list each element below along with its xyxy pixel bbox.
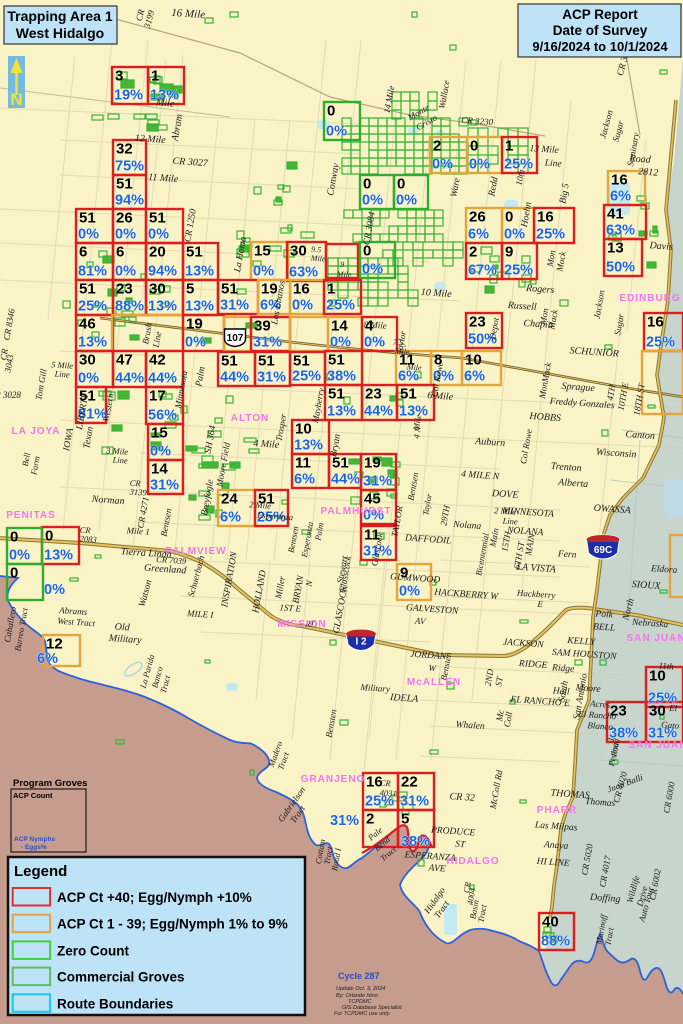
svg-text:Blanco: Blanco <box>587 720 614 732</box>
svg-text:0: 0 <box>10 529 18 546</box>
svg-text:HIDALGO: HIDALGO <box>446 856 499 867</box>
svg-text:Anaya: Anaya <box>543 840 569 852</box>
svg-text:31%: 31% <box>150 478 179 494</box>
svg-text:El: El <box>668 703 678 714</box>
svg-text:10: 10 <box>295 421 312 438</box>
svg-text:0%: 0% <box>326 124 347 140</box>
svg-text:5: 5 <box>186 281 194 298</box>
svg-text:5: 5 <box>401 811 409 828</box>
svg-text:51: 51 <box>116 176 133 193</box>
svg-text:6%: 6% <box>610 189 631 205</box>
svg-text:46: 46 <box>79 316 96 333</box>
svg-text:Doffing: Doffing <box>589 892 621 905</box>
svg-text:2: 2 <box>469 244 477 261</box>
svg-text:0: 0 <box>363 176 371 193</box>
svg-text:12: 12 <box>46 636 63 653</box>
svg-text:19: 19 <box>186 316 203 333</box>
svg-text:25%: 25% <box>326 298 355 314</box>
svg-text:0%: 0% <box>150 444 171 460</box>
svg-text:I 2: I 2 <box>355 637 367 648</box>
svg-text:Whalen: Whalen <box>455 720 485 732</box>
svg-text:Ridge: Ridge <box>551 663 575 675</box>
svg-text:Nolana: Nolana <box>452 520 482 532</box>
svg-text:22: 22 <box>401 774 418 791</box>
svg-text:63%: 63% <box>606 223 635 239</box>
svg-text:6%: 6% <box>464 369 485 385</box>
svg-text:45: 45 <box>364 491 381 508</box>
svg-text:0: 0 <box>327 103 335 120</box>
svg-text:0%: 0% <box>399 584 420 600</box>
svg-text:ACP Nymphs: ACP Nymphs <box>14 836 55 843</box>
svg-text:6%: 6% <box>468 227 489 243</box>
svg-text:16: 16 <box>537 209 554 226</box>
svg-text:88%: 88% <box>541 934 570 950</box>
svg-text:Mile: Mile <box>406 362 423 372</box>
svg-text:30: 30 <box>649 703 666 720</box>
svg-text:0%: 0% <box>148 227 169 243</box>
svg-text:EDINBURG: EDINBURG <box>619 293 680 304</box>
svg-text:Line: Line <box>543 158 562 169</box>
svg-text:38%: 38% <box>327 369 356 385</box>
svg-text:BELL: BELL <box>593 622 616 634</box>
svg-text:16 Mile: 16 Mile <box>171 7 206 21</box>
svg-text:0: 0 <box>45 528 53 545</box>
svg-text:11th: 11th <box>658 660 674 671</box>
svg-text:GRANJENO: GRANJENO <box>301 774 366 785</box>
svg-text:3139: 3139 <box>128 486 147 497</box>
svg-text:42: 42 <box>149 352 166 369</box>
svg-text:DOVE: DOVE <box>490 488 518 501</box>
svg-text:9: 9 <box>505 244 513 261</box>
svg-text:31%: 31% <box>363 474 392 490</box>
svg-text:10: 10 <box>465 352 482 369</box>
svg-text:75%: 75% <box>115 159 144 175</box>
svg-text:Acres: Acres <box>589 698 611 709</box>
svg-text:1: 1 <box>327 281 335 298</box>
svg-text:11 Mile: 11 Mile <box>148 172 179 185</box>
svg-text:17: 17 <box>149 388 166 405</box>
svg-text:51: 51 <box>149 210 166 227</box>
svg-text:For TCPDMC use only.: For TCPDMC use only. <box>334 1011 391 1017</box>
svg-text:SIOUX: SIOUX <box>631 579 661 592</box>
svg-text:44%: 44% <box>364 404 393 420</box>
svg-text:39: 39 <box>254 318 271 335</box>
svg-text:Old: Old <box>114 621 131 633</box>
svg-text:West Hidalgo: West Hidalgo <box>16 25 104 41</box>
svg-text:19: 19 <box>364 455 381 472</box>
svg-text:51: 51 <box>258 353 275 370</box>
svg-text:Zero Count: Zero Count <box>57 943 129 958</box>
svg-text:13%: 13% <box>185 299 214 315</box>
svg-text:11: 11 <box>295 455 311 472</box>
svg-text:0: 0 <box>470 138 478 155</box>
svg-text:PALMHURST: PALMHURST <box>320 506 391 517</box>
svg-text:ST: ST <box>455 840 466 851</box>
svg-text:0%: 0% <box>362 262 383 278</box>
svg-text:19%: 19% <box>114 88 143 104</box>
svg-text:13%: 13% <box>148 299 177 315</box>
svg-text:94%: 94% <box>148 264 177 280</box>
svg-text:Davis: Davis <box>648 240 673 253</box>
svg-text:15: 15 <box>254 243 271 260</box>
svg-text:PALMVIEW: PALMVIEW <box>165 546 226 557</box>
svg-text:20: 20 <box>149 244 166 261</box>
svg-text:Norman: Norman <box>90 494 124 507</box>
svg-text:51: 51 <box>328 352 345 369</box>
svg-text:51: 51 <box>79 281 96 298</box>
svg-text:12 Mile: 12 Mile <box>134 133 166 146</box>
svg-text:94%: 94% <box>115 193 144 209</box>
svg-text:Mile: Mile <box>155 97 176 109</box>
svg-text:6%: 6% <box>37 651 58 667</box>
svg-text:0%: 0% <box>504 227 525 243</box>
svg-text:MISSION: MISSION <box>277 619 326 630</box>
svg-text:LA JOYA: LA JOYA <box>11 426 60 437</box>
svg-text:Military: Military <box>359 682 390 694</box>
svg-text:67%: 67% <box>468 263 497 279</box>
svg-text:81%: 81% <box>78 264 107 280</box>
svg-text:8 Mile: 8 Mile <box>363 319 387 331</box>
svg-text:Program Groves: Program Groves <box>13 778 87 789</box>
svg-text:44%: 44% <box>220 370 249 386</box>
svg-text:0%: 0% <box>432 157 453 173</box>
svg-text:CR 3028: CR 3028 <box>0 390 21 400</box>
svg-text:13%: 13% <box>294 438 323 454</box>
svg-text:13: 13 <box>607 240 624 257</box>
svg-text:Route Boundaries: Route Boundaries <box>57 996 173 1011</box>
svg-text:31%: 31% <box>220 298 249 314</box>
svg-text:Polk: Polk <box>594 609 614 620</box>
svg-text:51: 51 <box>186 244 203 261</box>
svg-text:E: E <box>536 599 544 609</box>
svg-text:CR 32: CR 32 <box>449 791 475 804</box>
svg-text:31%: 31% <box>257 370 286 386</box>
svg-text:Legend: Legend <box>14 863 67 880</box>
svg-text:2: 2 <box>366 811 374 828</box>
svg-text:0%: 0% <box>44 582 65 598</box>
svg-text:44%: 44% <box>115 371 144 387</box>
svg-text:6: 6 <box>116 244 124 261</box>
svg-text:25%: 25% <box>504 263 533 279</box>
svg-text:6%: 6% <box>294 472 315 488</box>
svg-text:Cycle 287: Cycle 287 <box>338 971 380 981</box>
svg-text:25%: 25% <box>292 369 321 385</box>
svg-text:10 Mile: 10 Mile <box>420 287 452 300</box>
svg-text:25%: 25% <box>78 299 107 315</box>
svg-text:6%: 6% <box>220 510 241 526</box>
svg-text:RIDGE: RIDGE <box>518 659 548 671</box>
svg-text:- Eggs%: - Eggs% <box>21 844 47 851</box>
svg-text:41: 41 <box>607 206 624 223</box>
svg-text:26: 26 <box>469 209 486 226</box>
svg-text:14: 14 <box>331 318 348 335</box>
svg-text:0: 0 <box>505 209 513 226</box>
svg-text:51: 51 <box>79 210 96 227</box>
svg-text:Date of Survey: Date of Survey <box>553 23 648 38</box>
svg-text:Trapping Area 1: Trapping Area 1 <box>7 8 113 24</box>
svg-text:23: 23 <box>116 281 133 298</box>
svg-text:Eldora: Eldora <box>650 564 678 576</box>
svg-text:32: 32 <box>116 141 133 158</box>
svg-text:Trenton: Trenton <box>550 461 581 474</box>
svg-text:0%: 0% <box>78 227 99 243</box>
svg-text:ACP Ct 1 - 39; Egg/Nymph 1% to: ACP Ct 1 - 39; Egg/Nymph 1% to 9% <box>57 917 288 932</box>
svg-text:0%: 0% <box>362 193 383 209</box>
svg-text:24: 24 <box>221 491 238 508</box>
svg-text:2: 2 <box>433 138 441 155</box>
svg-text:107: 107 <box>227 333 244 344</box>
svg-text:AVE: AVE <box>427 863 446 874</box>
svg-text:44%: 44% <box>148 371 177 387</box>
svg-text:3: 3 <box>115 68 123 85</box>
svg-text:13%: 13% <box>44 548 73 564</box>
svg-text:56%: 56% <box>148 408 177 424</box>
svg-text:0: 0 <box>397 176 405 193</box>
svg-text:PHARR: PHARR <box>537 805 578 816</box>
svg-text:1: 1 <box>151 68 159 85</box>
svg-text:44%: 44% <box>331 472 360 488</box>
svg-text:Mile: Mile <box>310 253 327 263</box>
svg-text:26: 26 <box>116 210 133 227</box>
svg-text:4031: 4031 <box>379 787 397 798</box>
svg-text:Mile: Mile <box>336 269 353 279</box>
svg-text:31%: 31% <box>400 794 429 810</box>
svg-text:13%: 13% <box>185 264 214 280</box>
svg-text:Fern: Fern <box>557 549 577 560</box>
svg-text:Update Oct. 3, 2024: Update Oct. 3, 2024 <box>336 986 385 992</box>
svg-text:Russell: Russell <box>506 300 537 313</box>
svg-text:14: 14 <box>151 461 168 478</box>
svg-text:30: 30 <box>149 281 166 298</box>
svg-text:40: 40 <box>542 914 559 931</box>
svg-text:Alberta: Alberta <box>557 477 589 490</box>
svg-text:0%: 0% <box>330 335 351 351</box>
svg-text:ACP Report: ACP Report <box>562 7 638 22</box>
svg-text:Rogers: Rogers <box>525 283 555 296</box>
svg-text:51: 51 <box>400 386 417 403</box>
svg-text:50%: 50% <box>606 260 635 276</box>
svg-text:0%: 0% <box>292 298 313 314</box>
svg-text:PENITAS: PENITAS <box>6 510 56 521</box>
svg-text:SAN JUAN: SAN JUAN <box>628 740 683 751</box>
svg-text:McALLEN: McALLEN <box>407 677 461 688</box>
svg-text:IDELA: IDELA <box>389 692 420 705</box>
svg-text:9/16/2024 to 10/1/2024: 9/16/2024 to 10/1/2024 <box>532 39 668 54</box>
svg-text:9: 9 <box>340 260 345 269</box>
svg-text:51: 51 <box>328 386 345 403</box>
svg-text:KELLY: KELLY <box>566 636 597 648</box>
svg-text:30: 30 <box>79 352 96 369</box>
svg-text:13%: 13% <box>327 404 356 420</box>
svg-text:25%: 25% <box>536 227 565 243</box>
svg-text:31%: 31% <box>330 813 359 829</box>
svg-text:0: 0 <box>10 565 18 582</box>
svg-text:0%: 0% <box>396 193 417 209</box>
svg-text:16: 16 <box>647 314 664 331</box>
svg-text:51: 51 <box>221 281 238 298</box>
svg-text:16: 16 <box>293 281 310 298</box>
svg-text:51: 51 <box>293 353 310 370</box>
svg-text:Auburn: Auburn <box>474 436 506 449</box>
svg-text:ACP Count: ACP Count <box>13 791 53 800</box>
svg-text:Line: Line <box>111 454 128 465</box>
svg-text:0%: 0% <box>9 548 30 564</box>
svg-text:51: 51 <box>221 353 238 370</box>
svg-text:47: 47 <box>116 352 133 369</box>
svg-text:0%: 0% <box>469 157 490 173</box>
svg-text:13 Mile: 13 Mile <box>529 144 559 156</box>
svg-text:25%: 25% <box>646 335 675 351</box>
svg-text:2812: 2812 <box>638 166 659 178</box>
svg-text:2083: 2083 <box>79 533 97 544</box>
svg-text:13%: 13% <box>78 335 107 351</box>
svg-text:1: 1 <box>505 138 513 155</box>
svg-text:88%: 88% <box>115 299 144 315</box>
svg-text:MILE I: MILE I <box>186 608 215 620</box>
svg-text:23: 23 <box>469 314 486 331</box>
svg-text:HOBBS: HOBBS <box>528 411 561 424</box>
svg-text:SAN JUAN: SAN JUAN <box>626 633 683 644</box>
svg-text:0%: 0% <box>185 335 206 351</box>
svg-text:0%: 0% <box>253 264 274 280</box>
svg-text:0%: 0% <box>364 335 385 351</box>
svg-text:0%: 0% <box>115 227 136 243</box>
svg-text:Gato: Gato <box>661 719 680 730</box>
svg-text:23: 23 <box>365 386 382 403</box>
svg-text:16: 16 <box>611 172 628 189</box>
svg-text:69C: 69C <box>594 545 612 556</box>
svg-text:ALTON: ALTON <box>231 413 270 424</box>
svg-text:30: 30 <box>290 243 307 260</box>
svg-text:0%: 0% <box>115 264 136 280</box>
svg-text:38%: 38% <box>401 834 430 850</box>
svg-text:Commercial Groves: Commercial Groves <box>57 970 185 985</box>
svg-text:Line: Line <box>53 368 70 379</box>
svg-text:15: 15 <box>151 425 168 442</box>
svg-text:63%: 63% <box>289 265 318 281</box>
svg-text:Canton: Canton <box>625 429 655 442</box>
svg-text:31%: 31% <box>253 335 282 351</box>
svg-text:N: N <box>10 90 22 109</box>
svg-text:ACP Ct +40; Egg/Nymph +10%: ACP Ct +40; Egg/Nymph +10% <box>57 890 252 905</box>
svg-text:0%: 0% <box>78 371 99 387</box>
svg-text:6: 6 <box>79 244 87 261</box>
